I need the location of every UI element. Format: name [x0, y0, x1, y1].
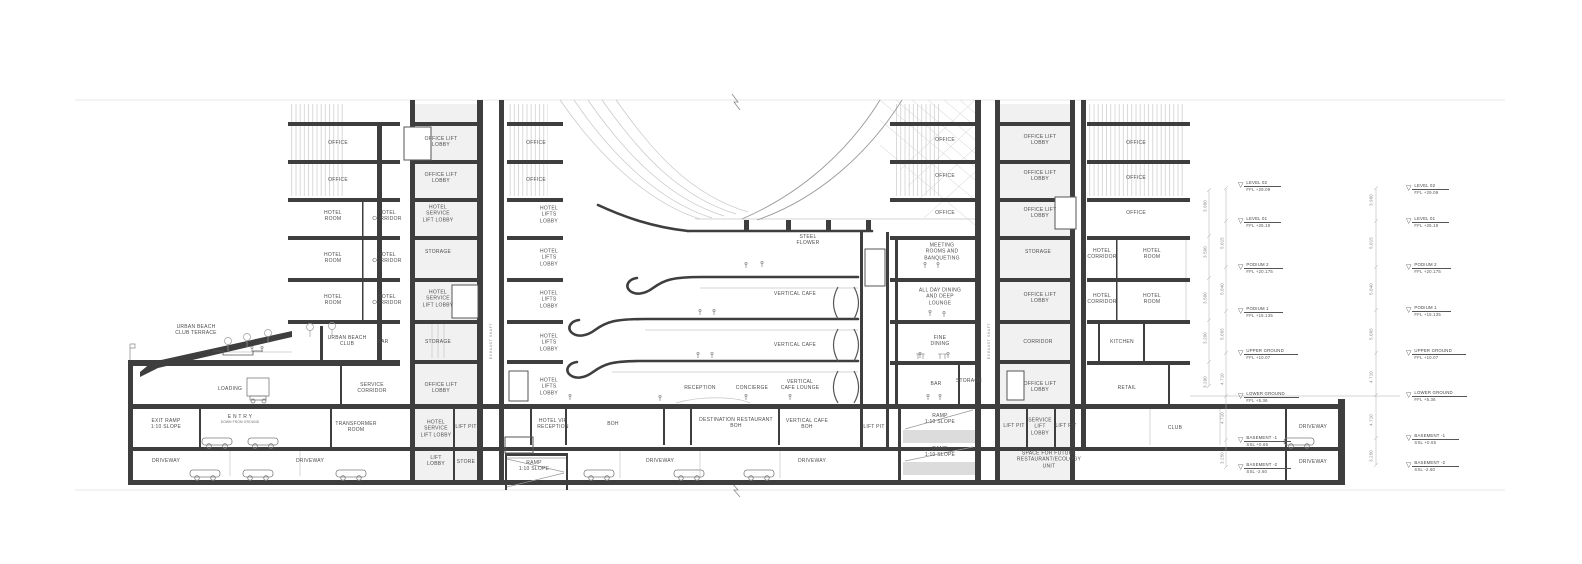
level-triangle-icon: ▽ — [1238, 308, 1243, 318]
room-label: LIFT PIT — [1003, 423, 1024, 429]
dimension-label: 3.250 — [1220, 452, 1225, 464]
level-marker: ▽BASEMENT -1SSL +0.65 — [1406, 433, 1459, 446]
room-label: OFFICE — [526, 140, 546, 146]
level-value: FFL +29.09 — [1412, 190, 1449, 196]
level-marker-text: PODIUM 1FFL +15.135 — [1244, 306, 1282, 319]
level-value: FFL +15.135 — [1412, 312, 1450, 318]
room-label: OFFICE LIFT LOBBY — [1024, 292, 1057, 305]
level-triangle-icon: ▽ — [1406, 392, 1411, 402]
room-label: LIFT PIT — [455, 424, 476, 430]
dimension-label: 3.900 — [1369, 194, 1374, 206]
level-marker: ▽PODIUM 2FFL +20.175 — [1406, 262, 1451, 275]
level-triangle-icon: ▽ — [1238, 350, 1243, 360]
room-label: OFFICE — [1126, 210, 1146, 216]
level-value: FFL +29.09 — [1244, 187, 1281, 193]
level-value: FFL +20.175 — [1244, 269, 1282, 275]
level-name: LEVEL 01 — [1412, 216, 1449, 223]
level-triangle-icon: ▽ — [1406, 307, 1411, 317]
level-marker-text: UPPER GROUNDFFL +10.07 — [1412, 348, 1466, 361]
room-label: SPACE FOR FUTURE RESTAURANT/ECOLOGY UNIT — [1017, 451, 1081, 470]
level-triangle-icon: ▽ — [1238, 264, 1243, 274]
level-marker-text: BASEMENT -1SSL +0.65 — [1244, 435, 1291, 448]
dimension-label: 5.065 — [1369, 328, 1374, 340]
dimension-label: 3.900 — [1203, 200, 1208, 212]
room-label: SERVICE CORRIDOR — [357, 382, 386, 395]
room-label: STORAGE — [425, 339, 451, 345]
level-triangle-icon: ▽ — [1406, 435, 1411, 445]
room-label: DRIVEWAY — [798, 458, 826, 464]
level-marker-text: BASEMENT -2SSL -2.60 — [1244, 462, 1291, 475]
level-marker-text: LEVEL 01FFL +25.19 — [1412, 216, 1449, 229]
level-marker: ▽LEVEL 02FFL +29.09 — [1238, 180, 1281, 193]
room-label: BOH — [607, 421, 619, 427]
room-label: KITCHEN — [1110, 339, 1134, 345]
room-label: LOADING — [218, 386, 242, 392]
room-label: HOTEL CORRIDOR — [372, 252, 401, 265]
room-label: OFFICE LIFT LOBBY — [1024, 381, 1057, 394]
room-label: OFFICE — [1126, 175, 1146, 181]
level-marker: ▽PODIUM 2FFL +20.175 — [1238, 262, 1283, 275]
dimension-label: 4.710 — [1220, 373, 1225, 385]
level-triangle-icon: ▽ — [1238, 437, 1243, 447]
level-value: FFL +15.135 — [1244, 313, 1282, 319]
dimension-label: 5.040 — [1369, 283, 1374, 295]
level-value: FFL +25.19 — [1412, 223, 1449, 229]
room-label: ALL DAY DINING AND DEEP LOUNGE — [919, 288, 961, 307]
dimension-label: 4.710 — [1220, 412, 1225, 424]
room-label: VERTICAL CAFE — [774, 291, 816, 297]
room-label: HOTEL LIFTS LOBBY — [540, 249, 558, 268]
level-triangle-icon: ▽ — [1238, 218, 1243, 228]
dimension-label: 4.710 — [1369, 414, 1374, 426]
level-name: UPPER GROUND — [1412, 348, 1466, 355]
room-label: HOTEL VIP RECEPTION — [537, 418, 568, 431]
room-label: VERTICAL CAFE BOH — [786, 418, 828, 431]
level-value: FFL +5.36 — [1244, 398, 1298, 404]
room-label: OFFICE LIFT LOBBY — [1024, 134, 1057, 147]
room-label: HOTEL ROOM — [324, 252, 342, 265]
level-name: LOWER GROUND — [1412, 390, 1466, 397]
room-label-sub: DOWN FROM GROUND — [221, 420, 260, 424]
shaft-vertical-label: EXHAUST SHAFT — [987, 323, 991, 359]
room-label: HOTEL LIFTS LOBBY — [540, 206, 558, 225]
section-linework — [0, 0, 1582, 564]
level-marker: ▽LEVEL 02FFL +29.09 — [1406, 183, 1449, 196]
room-label: HOTEL LIFTS LOBBY — [540, 291, 558, 310]
room-label: HOTEL SERVICE LIFT LOBBY — [421, 420, 452, 439]
dimension-label: 3.500 — [1203, 246, 1208, 258]
room-label: SERVICE LIFT LOBBY — [1028, 418, 1052, 437]
room-label: HOTEL CORRIDOR — [372, 294, 401, 307]
level-marker: ▽LOWER GROUNDFFL +5.36 — [1406, 390, 1467, 403]
room-label: STORAGE — [425, 249, 451, 255]
level-value: SSL +0.65 — [1244, 442, 1291, 448]
level-marker-text: PODIUM 2FFL +20.175 — [1412, 262, 1450, 275]
room-label: BAR — [377, 339, 388, 345]
level-value: FFL +10.07 — [1412, 355, 1466, 361]
level-marker: ▽BASEMENT -2SSL -2.60 — [1238, 462, 1291, 475]
room-label: BAR — [930, 381, 941, 387]
room-label: URBAN BEACH CLUB TERRACE — [175, 324, 217, 337]
level-value: FFL +5.36 — [1412, 397, 1466, 403]
room-label: TRANSFORMER ROOM — [335, 421, 376, 434]
room-label: DRIVEWAY — [296, 458, 324, 464]
room-label: CONCIERGE — [736, 385, 769, 391]
level-marker: ▽BASEMENT -1SSL +0.65 — [1238, 435, 1291, 448]
dimension-label: 3.200 — [1203, 376, 1208, 388]
level-marker-text: UPPER GROUNDFFL +10.07 — [1244, 348, 1298, 361]
room-label: STEEL FLOWER — [797, 234, 820, 247]
dimension-label: 5.040 — [1220, 283, 1225, 295]
room-label: OFFICE — [935, 137, 955, 143]
room-label: VERTICAL CAFE LOUNGE — [781, 379, 820, 392]
room-label: MEETING ROOMS AND BANQUETING — [924, 243, 960, 262]
level-name: BASEMENT -2 — [1244, 462, 1291, 469]
level-marker-text: LEVEL 02FFL +29.09 — [1244, 180, 1281, 193]
dimension-label: 5.015 — [1369, 237, 1374, 249]
level-marker: ▽PODIUM 1FFL +15.135 — [1238, 306, 1283, 319]
room-label: OFFICE LIFT LOBBY — [425, 136, 458, 149]
room-label: OFFICE — [935, 210, 955, 216]
room-label: LIFT PIT — [1055, 423, 1076, 429]
room-label: RETAIL — [1118, 385, 1137, 391]
room-label: HOTEL ROOM — [324, 294, 342, 307]
level-value: FFL +25.19 — [1244, 223, 1281, 229]
room-label: RAMP 1:10 SLOPE — [519, 460, 549, 473]
room-label: STORE — [457, 459, 475, 465]
room-label: VERTICAL CAFE — [774, 342, 816, 348]
level-triangle-icon: ▽ — [1406, 350, 1411, 360]
level-marker-text: BASEMENT -2SSL -2.60 — [1412, 460, 1459, 473]
room-label: HOTEL LIFTS LOBBY — [540, 334, 558, 353]
level-triangle-icon: ▽ — [1406, 264, 1411, 274]
room-label: CORRIDOR — [1023, 339, 1052, 345]
dimension-label: 5.065 — [1220, 328, 1225, 340]
level-triangle-icon: ▽ — [1238, 393, 1243, 403]
level-marker-text: LOWER GROUNDFFL +5.36 — [1412, 390, 1466, 403]
room-label: STORAGE — [956, 378, 982, 384]
dimension-label: 3.500 — [1203, 292, 1208, 304]
dimension-label: 3.250 — [1369, 450, 1374, 462]
room-label: RECEPTION — [684, 385, 715, 391]
shaft-vertical-label: EXHAUST SHAFT — [489, 323, 493, 359]
level-marker-text: LEVEL 01FFL +25.19 — [1244, 216, 1281, 229]
room-label: DRIVEWAY — [152, 458, 180, 464]
room-label: HOTEL CORRIDOR — [372, 210, 401, 223]
room-label: OFFICE — [328, 177, 348, 183]
room-label: E N T R YDOWN FROM GROUND — [221, 414, 260, 424]
level-value: SSL -2.60 — [1244, 469, 1291, 475]
level-marker: ▽LEVEL 01FFL +25.19 — [1406, 216, 1449, 229]
level-marker: ▽UPPER GROUNDFFL +10.07 — [1238, 348, 1298, 361]
level-triangle-icon: ▽ — [1238, 182, 1243, 192]
level-name: LEVEL 01 — [1244, 216, 1281, 223]
level-value: FFL +10.07 — [1244, 355, 1298, 361]
room-label: RAMP 1:10 SLOPE — [925, 446, 955, 459]
level-marker-text: BASEMENT -1SSL +0.65 — [1412, 433, 1459, 446]
room-label: DRIVEWAY — [1299, 459, 1327, 465]
level-marker: ▽UPPER GROUNDFFL +10.07 — [1406, 348, 1466, 361]
room-label: CLUB — [1168, 425, 1182, 431]
room-label: HOTEL CORRIDOR — [1087, 293, 1116, 306]
room-label: OFFICE — [1126, 140, 1146, 146]
room-label: FINE DINING — [931, 335, 950, 348]
level-marker: ▽LOWER GROUNDFFL +5.36 — [1238, 391, 1299, 404]
level-name: PODIUM 2 — [1244, 262, 1282, 269]
level-marker-text: PODIUM 2FFL +20.175 — [1244, 262, 1282, 275]
level-value: FFL +20.175 — [1412, 269, 1450, 275]
room-label: OFFICE LIFT LOBBY — [1024, 207, 1057, 220]
room-label: OFFICE LIFT LOBBY — [1024, 170, 1057, 183]
level-value: SSL +0.65 — [1412, 440, 1459, 446]
room-label: LIFT PIT — [863, 424, 884, 430]
room-label: DRIVEWAY — [646, 458, 674, 464]
room-label: OFFICE LIFT LOBBY — [425, 382, 458, 395]
room-label: RAMP 1:10 SLOPE — [925, 413, 955, 426]
room-label: URBAN BEACH CLUB — [328, 335, 367, 348]
room-label: LIFT LOBBY — [427, 455, 445, 468]
room-label: HOTEL ROOM — [1143, 293, 1161, 306]
level-name: PODIUM 2 — [1412, 262, 1450, 269]
room-label: HOTEL ROOM — [1143, 248, 1161, 261]
level-name: UPPER GROUND — [1244, 348, 1298, 355]
level-triangle-icon: ▽ — [1406, 185, 1411, 195]
level-marker: ▽PODIUM 1FFL +15.135 — [1406, 305, 1451, 318]
room-label: HOTEL ROOM — [324, 210, 342, 223]
dimension-label: 4.710 — [1369, 371, 1374, 383]
level-triangle-icon: ▽ — [1238, 464, 1243, 474]
room-label: OFFICE LIFT LOBBY — [425, 172, 458, 185]
room-label: EXIT RAMP 1:10 SLOPE — [151, 418, 181, 431]
level-marker: ▽BASEMENT -2SSL -2.60 — [1406, 460, 1459, 473]
level-marker-text: PODIUM 1FFL +15.135 — [1412, 305, 1450, 318]
room-label: HOTEL LIFTS LOBBY — [540, 378, 558, 397]
level-name: LOWER GROUND — [1244, 391, 1298, 398]
level-name: BASEMENT -1 — [1412, 433, 1459, 440]
level-marker-text: LEVEL 02FFL +29.09 — [1412, 183, 1449, 196]
level-value: SSL -2.60 — [1412, 467, 1459, 473]
room-label: HOTEL SERVICE LIFT LOBBY — [423, 205, 454, 224]
section-drawing: OFFICEOFFICEHOTEL ROOMHOTEL CORRIDORHOTE… — [0, 0, 1582, 564]
room-label: OFFICE — [526, 177, 546, 183]
level-name: BASEMENT -1 — [1244, 435, 1291, 442]
room-label: DESTINATION RESTAURANT BOH — [699, 417, 773, 430]
room-label: STORAGE — [1025, 249, 1051, 255]
room-label: OFFICE — [935, 173, 955, 179]
room-label: HOTEL CORRIDOR — [1087, 248, 1116, 261]
level-name: LEVEL 02 — [1412, 183, 1449, 190]
level-triangle-icon: ▽ — [1406, 462, 1411, 472]
room-label: HOTEL SERVICE LIFT LOBBY — [423, 290, 454, 309]
level-marker-text: LOWER GROUNDFFL +5.36 — [1244, 391, 1298, 404]
dimension-label: 5.015 — [1220, 237, 1225, 249]
level-name: BASEMENT -2 — [1412, 460, 1459, 467]
level-triangle-icon: ▽ — [1406, 218, 1411, 228]
level-name: PODIUM 1 — [1412, 305, 1450, 312]
dimension-label: 3.200 — [1203, 332, 1208, 344]
level-marker: ▽LEVEL 01FFL +25.19 — [1238, 216, 1281, 229]
level-name: LEVEL 02 — [1244, 180, 1281, 187]
room-label: OFFICE — [328, 140, 348, 146]
room-label: DRIVEWAY — [1299, 424, 1327, 430]
level-name: PODIUM 1 — [1244, 306, 1282, 313]
